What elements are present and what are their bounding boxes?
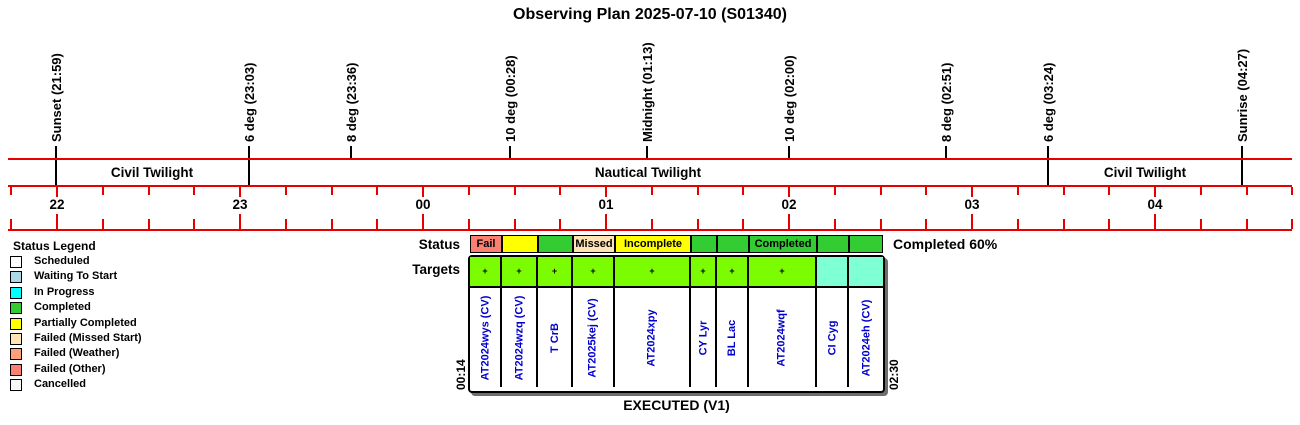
- minor-tick-up: [468, 219, 470, 229]
- target-name-cell: AT2025kej (CV): [573, 288, 615, 387]
- minor-tick-down: [331, 187, 333, 195]
- target-status-cell: +: [615, 257, 691, 286]
- status-cell-label: Missed: [575, 238, 612, 250]
- minor-tick-down: [1246, 187, 1248, 195]
- target-name-row: AT2024wys (CV)AT2024wzq (CV)T CrBAT2025k…: [470, 288, 883, 387]
- status-cell: [502, 235, 538, 253]
- observing-plan-chart: Observing Plan 2025-07-10 (S01340) Sunse…: [0, 0, 1300, 425]
- target-name-cell: AT2024xpy: [615, 288, 691, 387]
- legend-item-label: Cancelled: [34, 378, 86, 390]
- minor-tick-up: [193, 219, 195, 229]
- hour-tick-down: [605, 187, 607, 197]
- target-status-cell: +: [691, 257, 717, 286]
- event-marker-label: 6 deg (03:24): [1042, 63, 1055, 142]
- minor-tick-down: [925, 187, 927, 195]
- target-name-cell: BL Lac: [717, 288, 749, 387]
- hour-tick-down: [422, 187, 424, 197]
- legend-color-swatch: [10, 256, 22, 268]
- hour-tick-up: [239, 214, 241, 229]
- status-cell: [849, 235, 883, 253]
- status-cell-label: Fail: [477, 238, 496, 250]
- target-status-cell: +: [717, 257, 749, 286]
- legend-item-label: Failed (Missed Start): [34, 332, 142, 344]
- legend-item-label: Waiting To Start: [34, 270, 117, 282]
- event-marker-label: 10 deg (02:00): [783, 55, 796, 142]
- minor-tick-up: [102, 219, 104, 229]
- minor-tick-down: [1108, 187, 1110, 195]
- legend-title: Status Legend: [13, 239, 96, 253]
- minor-tick-up: [376, 219, 378, 229]
- hour-label: 23: [232, 197, 247, 212]
- target-status-color-row: ++++++++: [470, 257, 883, 288]
- minor-tick-up: [742, 219, 744, 229]
- targets-row-label: Targets: [390, 262, 460, 277]
- event-marker-label: 6 deg (23:03): [243, 63, 256, 142]
- legend-color-swatch: [10, 271, 22, 283]
- event-marker-label: 10 deg (00:28): [504, 55, 517, 142]
- status-bar: FailMissedIncompleteCompleted: [470, 235, 883, 253]
- executed-targets-table: ++++++++ AT2024wys (CV)AT2024wzq (CV)T C…: [468, 255, 885, 393]
- minor-tick-up: [1108, 219, 1110, 229]
- target-name-cell: T CrB: [538, 288, 573, 387]
- axis-line-top: [8, 158, 1292, 160]
- status-cell: Missed: [573, 235, 615, 253]
- minor-tick-up: [285, 219, 287, 229]
- minor-tick-up: [1246, 219, 1248, 229]
- target-name-cell: AT2024wqf: [749, 288, 817, 387]
- minor-tick-up: [834, 219, 836, 229]
- event-marker-label: Sunset (21:59): [50, 53, 63, 142]
- executed-version-label: EXECUTED (V1): [468, 397, 885, 413]
- minor-tick-down: [468, 187, 470, 195]
- event-marker-label: Sunrise (04:27): [1236, 49, 1249, 142]
- target-name: T CrB: [548, 323, 560, 353]
- minor-tick-down: [1017, 187, 1019, 195]
- minor-tick-down: [193, 187, 195, 195]
- target-name: AT2024wqf: [776, 309, 788, 366]
- status-row-label: Status: [390, 237, 460, 252]
- target-name: AT2024wzq (CV): [513, 295, 525, 380]
- event-marker-label: 8 deg (02:51): [940, 63, 953, 142]
- target-status-cell: +: [470, 257, 502, 286]
- legend-color-swatch: [10, 318, 22, 330]
- page-title: Observing Plan 2025-07-10 (S01340): [0, 6, 1300, 24]
- legend-item-label: In Progress: [34, 286, 95, 298]
- minor-tick-up: [559, 219, 561, 229]
- target-name-cell: AT2024wys (CV): [470, 288, 502, 387]
- target-name: AT2025kej (CV): [587, 298, 599, 377]
- minor-tick-up: [697, 219, 699, 229]
- minor-tick-up: [331, 219, 333, 229]
- legend-item-label: Partially Completed: [34, 317, 137, 329]
- hour-tick-up: [605, 214, 607, 229]
- twilight-band-label: Civil Twilight: [1104, 165, 1186, 180]
- target-name: BL Lac: [726, 319, 738, 355]
- hour-tick-down: [788, 187, 790, 197]
- minor-tick-down: [10, 187, 12, 195]
- hour-tick-up: [56, 214, 58, 229]
- event-marker-tick: [1241, 146, 1243, 186]
- status-cell: [717, 235, 749, 253]
- target-point-marker: +: [729, 267, 734, 276]
- event-marker-tick: [1047, 146, 1049, 186]
- hour-tick-up: [788, 214, 790, 229]
- target-status-cell: +: [538, 257, 573, 286]
- hour-tick-down: [971, 187, 973, 197]
- status-cell: [538, 235, 573, 253]
- event-marker-tick: [55, 146, 57, 186]
- minor-tick-down: [285, 187, 287, 195]
- hour-label: 01: [598, 197, 613, 212]
- legend-color-swatch: [10, 364, 22, 376]
- legend-item-label: Completed: [34, 301, 91, 313]
- target-status-cell: +: [502, 257, 538, 286]
- window-end-time: 02:30: [888, 359, 900, 390]
- status-cell: Completed: [749, 235, 817, 253]
- window-start-time: 00:14: [455, 359, 467, 390]
- target-point-marker: +: [779, 267, 784, 276]
- target-status-cell: +: [749, 257, 817, 286]
- target-name: AT2024wys (CV): [479, 295, 491, 380]
- status-cell: Fail: [470, 235, 502, 253]
- event-marker-tick: [248, 146, 250, 186]
- target-point-marker: +: [700, 267, 705, 276]
- target-name: CY Lyr: [697, 320, 709, 355]
- event-marker-label: 8 deg (23:36): [345, 63, 358, 142]
- minor-tick-down: [834, 187, 836, 195]
- minor-tick-up: [1017, 219, 1019, 229]
- twilight-band-label: Nautical Twilight: [595, 165, 701, 180]
- minor-tick-down: [1200, 187, 1202, 195]
- minor-tick-up: [1063, 219, 1065, 229]
- target-point-marker: +: [516, 267, 521, 276]
- target-name: CI Cyg: [826, 320, 838, 355]
- legend-color-swatch: [10, 302, 22, 314]
- target-point-marker: +: [590, 267, 595, 276]
- target-name: AT2024xpy: [646, 309, 658, 366]
- target-status-cell: [817, 257, 849, 286]
- target-point-marker: +: [649, 267, 654, 276]
- target-name-cell: CY Lyr: [691, 288, 717, 387]
- minor-tick-up: [651, 219, 653, 229]
- legend-item-label: Failed (Weather): [34, 347, 119, 359]
- status-cell: [817, 235, 849, 253]
- minor-tick-down: [651, 187, 653, 195]
- target-point-marker: +: [552, 267, 557, 276]
- minor-tick-up: [1291, 219, 1293, 229]
- minor-tick-down: [514, 187, 516, 195]
- hour-label: 03: [964, 197, 979, 212]
- hour-tick-up: [971, 214, 973, 229]
- minor-tick-down: [102, 187, 104, 195]
- minor-tick-down: [148, 187, 150, 195]
- minor-tick-up: [925, 219, 927, 229]
- legend-color-swatch: [10, 287, 22, 299]
- minor-tick-down: [742, 187, 744, 195]
- legend-color-swatch: [10, 379, 22, 391]
- target-point-marker: +: [482, 267, 487, 276]
- target-status-cell: +: [573, 257, 615, 286]
- minor-tick-up: [148, 219, 150, 229]
- hour-label: 02: [781, 197, 796, 212]
- hour-tick-down: [56, 187, 58, 197]
- target-name-cell: AT2024wzq (CV): [502, 288, 538, 387]
- status-cell: Incomplete: [615, 235, 691, 253]
- completion-summary: Completed 60%: [893, 236, 997, 252]
- hour-tick-down: [239, 187, 241, 197]
- legend-item-label: Scheduled: [34, 255, 90, 267]
- minor-tick-down: [559, 187, 561, 195]
- minor-tick-down: [376, 187, 378, 195]
- minor-tick-down: [1063, 187, 1065, 195]
- minor-tick-up: [10, 219, 12, 229]
- hour-tick-up: [1154, 214, 1156, 229]
- event-marker-label: Midnight (01:13): [641, 42, 654, 142]
- minor-tick-down: [697, 187, 699, 195]
- legend-color-swatch: [10, 333, 22, 345]
- twilight-band-label: Civil Twilight: [111, 165, 193, 180]
- minor-tick-down: [880, 187, 882, 195]
- hour-label: 22: [49, 197, 64, 212]
- hour-tick-up: [422, 214, 424, 229]
- status-cell-label: Incomplete: [624, 238, 682, 250]
- hour-label: 00: [415, 197, 430, 212]
- status-cell-label: Completed: [755, 238, 812, 250]
- legend-item-label: Failed (Other): [34, 363, 106, 375]
- minor-tick-up: [880, 219, 882, 229]
- legend-color-swatch: [10, 348, 22, 360]
- axis-line-bottom: [8, 229, 1292, 231]
- minor-tick-down: [1291, 187, 1293, 195]
- target-name-cell: CI Cyg: [817, 288, 849, 387]
- minor-tick-up: [514, 219, 516, 229]
- target-name: AT2024eh (CV): [860, 299, 872, 376]
- hour-label: 04: [1147, 197, 1162, 212]
- minor-tick-up: [1200, 219, 1202, 229]
- target-status-cell: [849, 257, 883, 286]
- target-name-cell: AT2024eh (CV): [849, 288, 883, 387]
- status-cell: [691, 235, 717, 253]
- hour-tick-down: [1154, 187, 1156, 197]
